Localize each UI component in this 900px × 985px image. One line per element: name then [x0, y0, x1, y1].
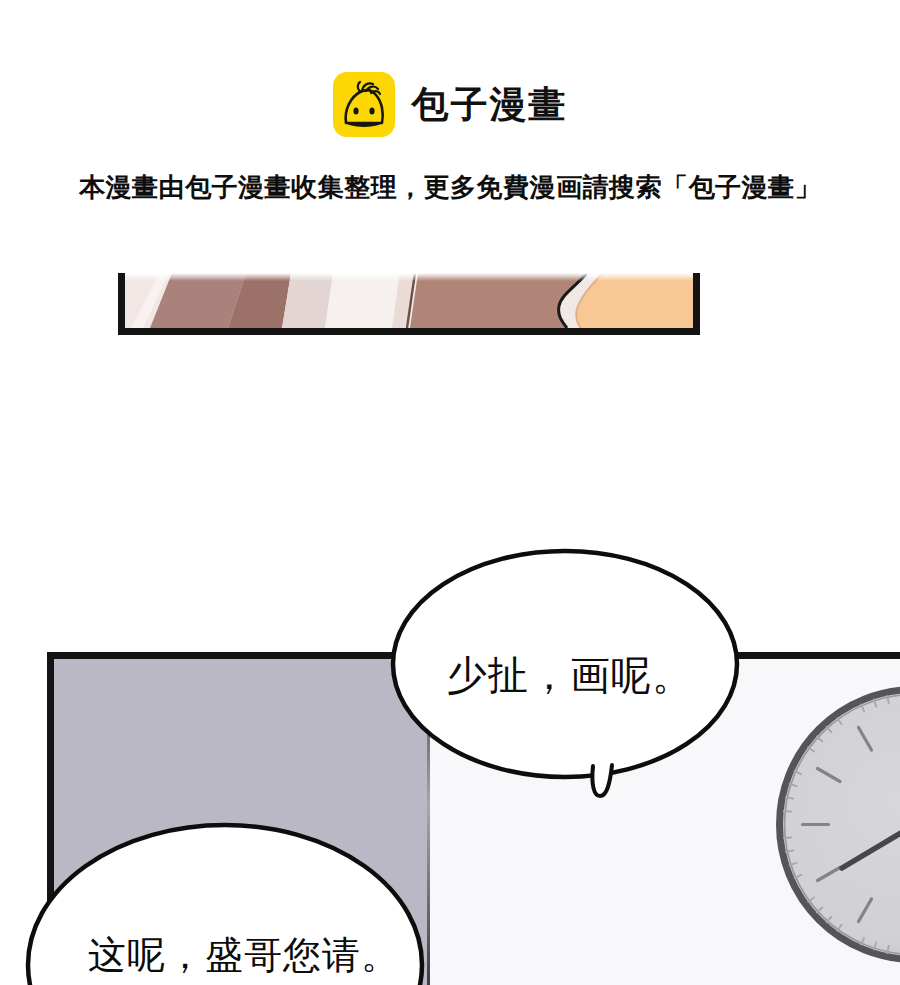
- wall-clock-icon: [770, 680, 900, 972]
- comic-panel-top: [118, 273, 700, 335]
- brand-logo[interactable]: 包子漫畫: [0, 72, 900, 137]
- baozi-bun-icon: [333, 72, 395, 137]
- brand-title: 包子漫畫: [412, 86, 568, 123]
- comic-reader-page: 包子漫畫 本漫畫由包子漫畫收集整理，更多免費漫画請搜索「包子漫畫」: [0, 0, 900, 985]
- speech-bubble-top-text: 少扯，画呢。: [400, 648, 740, 703]
- speech-bubble-bottom-text: 这呢，盛哥您请。: [54, 930, 434, 981]
- site-tagline: 本漫畫由包子漫畫收集整理，更多免費漫画請搜索「包子漫畫」: [0, 170, 900, 205]
- panel-top-artwork: [125, 273, 693, 328]
